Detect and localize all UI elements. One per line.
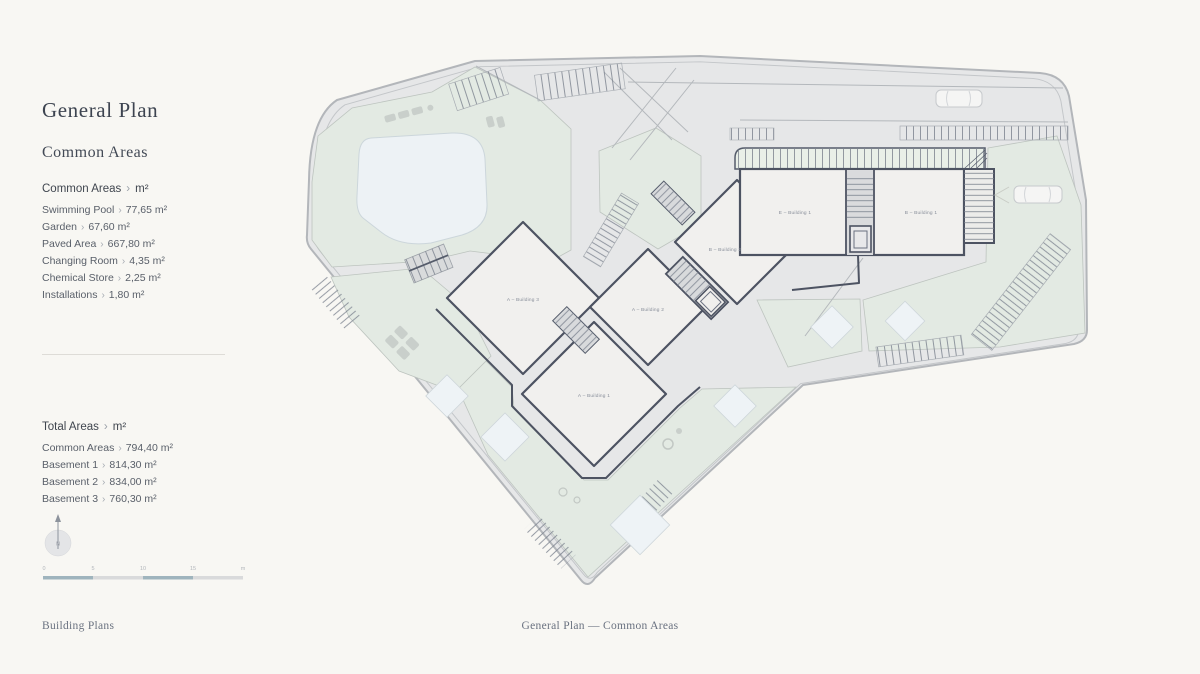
separator: › — [118, 205, 121, 216]
item-label: Basement 1 — [42, 459, 98, 471]
item-label: Chemical Store — [42, 272, 114, 284]
item-value: 1,80 m² — [109, 289, 145, 301]
total-areas-section: Total Areas›m² Common Areas›794,40 m² Ba… — [42, 421, 294, 508]
item-value: 667,80 m² — [108, 238, 155, 250]
building-label: B – Building 1 — [905, 210, 938, 216]
separator: › — [102, 460, 105, 471]
building-label: A – Building 3 — [507, 297, 539, 303]
separator: › — [101, 290, 104, 301]
common-areas-list: Swimming Pool›77,65 m² Garden›67,60 m² P… — [42, 202, 294, 304]
total-areas-list: Common Areas›794,40 m² Basement 1›814,30… — [42, 440, 294, 508]
item-value: 814,30 m² — [109, 459, 156, 471]
item-value: 4,35 m² — [129, 255, 165, 267]
item-label: Installations — [42, 289, 97, 301]
legend-sidebar: General Plan Common Areas Common Areas›m… — [42, 98, 294, 304]
building-label: E – Building 1 — [779, 210, 812, 216]
item-value: 760,30 m² — [109, 493, 156, 505]
scale-bar: 0 5 10 15 m — [42, 566, 245, 580]
item-value: 77,65 m² — [126, 204, 167, 216]
page-subtitle: Common Areas — [42, 144, 294, 162]
swimming-pool[interactable] — [357, 133, 487, 244]
building-label: B – Building 2 — [709, 247, 742, 253]
item-label: Paved Area — [42, 238, 96, 250]
section-unit: m² — [113, 421, 126, 433]
separator: › — [122, 256, 125, 267]
car — [936, 90, 982, 107]
list-item: Installations›1,80 m² — [42, 287, 294, 304]
list-item: Swimming Pool›77,65 m² — [42, 202, 294, 219]
separator: › — [118, 443, 121, 454]
item-value: 2,25 m² — [125, 272, 161, 284]
separator: › — [102, 477, 105, 488]
item-label: Basement 2 — [42, 476, 98, 488]
scale-tick: 15 — [190, 566, 196, 572]
section-unit: m² — [135, 183, 148, 195]
breadcrumb[interactable]: General Plan — Common Areas — [0, 620, 1200, 632]
separator: › — [81, 222, 84, 233]
separator: › — [126, 183, 130, 195]
compass-icon: N — [45, 514, 71, 556]
sidebar-divider — [42, 354, 225, 355]
scale-tick: m — [241, 566, 246, 572]
svg-text:N: N — [56, 542, 60, 548]
list-item: Changing Room›4,35 m² — [42, 253, 294, 270]
section-heading-label: Common Areas — [42, 183, 121, 195]
item-label: Swimming Pool — [42, 204, 114, 216]
item-label: Garden — [42, 221, 77, 233]
section-heading-label: Total Areas — [42, 421, 99, 433]
item-label: Common Areas — [42, 442, 114, 454]
separator: › — [104, 421, 108, 433]
list-item: Chemical Store›2,25 m² — [42, 270, 294, 287]
building-label: A – Building 2 — [632, 307, 664, 313]
separator: › — [102, 494, 105, 505]
section-heading-total-areas: Total Areas›m² — [42, 421, 294, 433]
separator: › — [118, 273, 121, 284]
separator: › — [100, 239, 103, 250]
item-label: Basement 3 — [42, 493, 98, 505]
list-item: Common Areas›794,40 m² — [42, 440, 294, 457]
car — [1014, 186, 1062, 203]
list-item: Basement 2›834,00 m² — [42, 474, 294, 491]
list-item: Basement 3›760,30 m² — [42, 491, 294, 508]
scale-tick: 5 — [91, 566, 94, 572]
scale-tick: 10 — [140, 566, 146, 572]
section-heading-common-areas: Common Areas›m² — [42, 183, 294, 195]
building-complex-top — [735, 148, 994, 255]
list-item: Basement 1›814,30 m² — [42, 457, 294, 474]
scale-tick: 0 — [42, 566, 45, 572]
list-item: Paved Area›667,80 m² — [42, 236, 294, 253]
building-label: A – Building 1 — [578, 393, 610, 399]
list-item: Garden›67,60 m² — [42, 219, 294, 236]
item-value: 794,40 m² — [126, 442, 173, 454]
item-label: Changing Room — [42, 255, 118, 267]
item-value: 67,60 m² — [88, 221, 129, 233]
page-title: General Plan — [42, 98, 294, 123]
item-value: 834,00 m² — [109, 476, 156, 488]
